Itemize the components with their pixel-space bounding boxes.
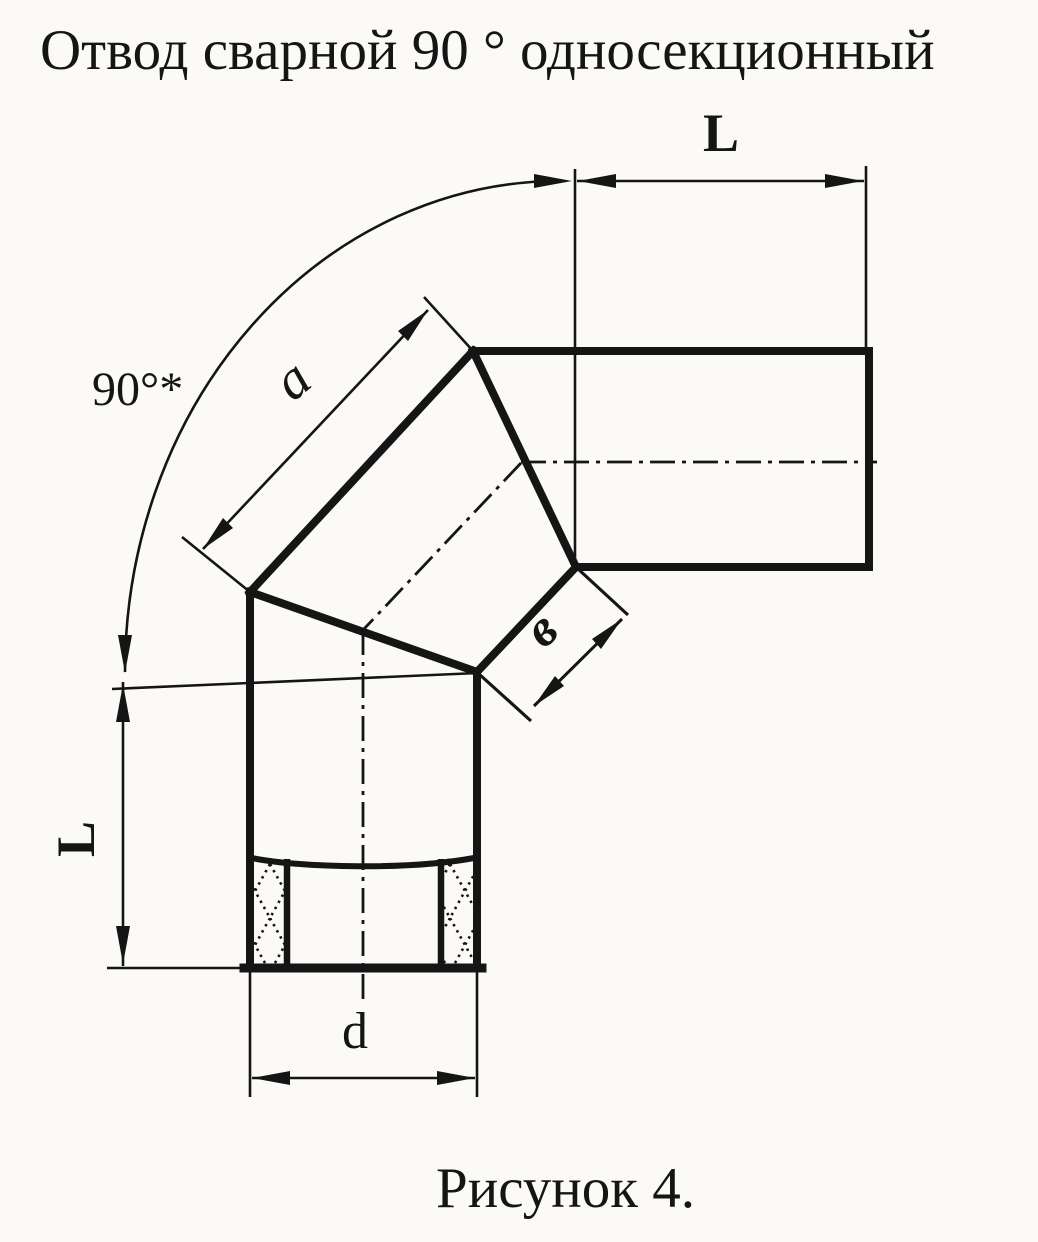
- dim-label-L-left: L: [49, 821, 103, 857]
- ext-line-a-upper: [424, 297, 473, 351]
- horizontal-pipe-outline: [473, 351, 869, 567]
- socket-hatch-left: [254, 857, 284, 966]
- ext-line-b-upper: [577, 568, 628, 615]
- dim-line-a: [203, 310, 428, 549]
- ext-line-b-lower: [479, 674, 531, 721]
- socket-hatch-right: [444, 857, 474, 966]
- dim-label-d: d: [342, 1006, 368, 1058]
- arrowhead-group: [116, 174, 863, 1085]
- arrowhead-arc-bottom: [118, 635, 132, 673]
- arrowhead-d-right: [437, 1071, 475, 1085]
- gore-axis-centerline: [363, 463, 521, 630]
- arrowhead-L-top-right: [825, 174, 863, 188]
- dim-label-angle-90: 90°*: [92, 366, 183, 414]
- drawing-title: Отвод сварной 90 ° односекционный: [40, 22, 935, 79]
- upper-miter-weld-edge: [473, 351, 576, 567]
- dim-label-L-top: L: [703, 106, 739, 160]
- scanned-drawing-page: Отвод сварной 90 ° односекционный L 90°*…: [0, 0, 1038, 1242]
- arrowhead-d-left: [252, 1071, 290, 1085]
- arrowhead-arc-top: [534, 174, 572, 188]
- ext-line-left-top: [112, 673, 478, 689]
- dimension-line-group: [107, 166, 866, 1097]
- figure-caption: Рисунок 4.: [436, 1160, 695, 1217]
- ext-line-a-lower: [182, 537, 250, 592]
- pipe-outline-group: [244, 351, 869, 968]
- angle-arc-90: [125, 181, 558, 672]
- arrowhead-L-top-left: [578, 174, 616, 188]
- arrowhead-L-left-bottom: [116, 926, 130, 964]
